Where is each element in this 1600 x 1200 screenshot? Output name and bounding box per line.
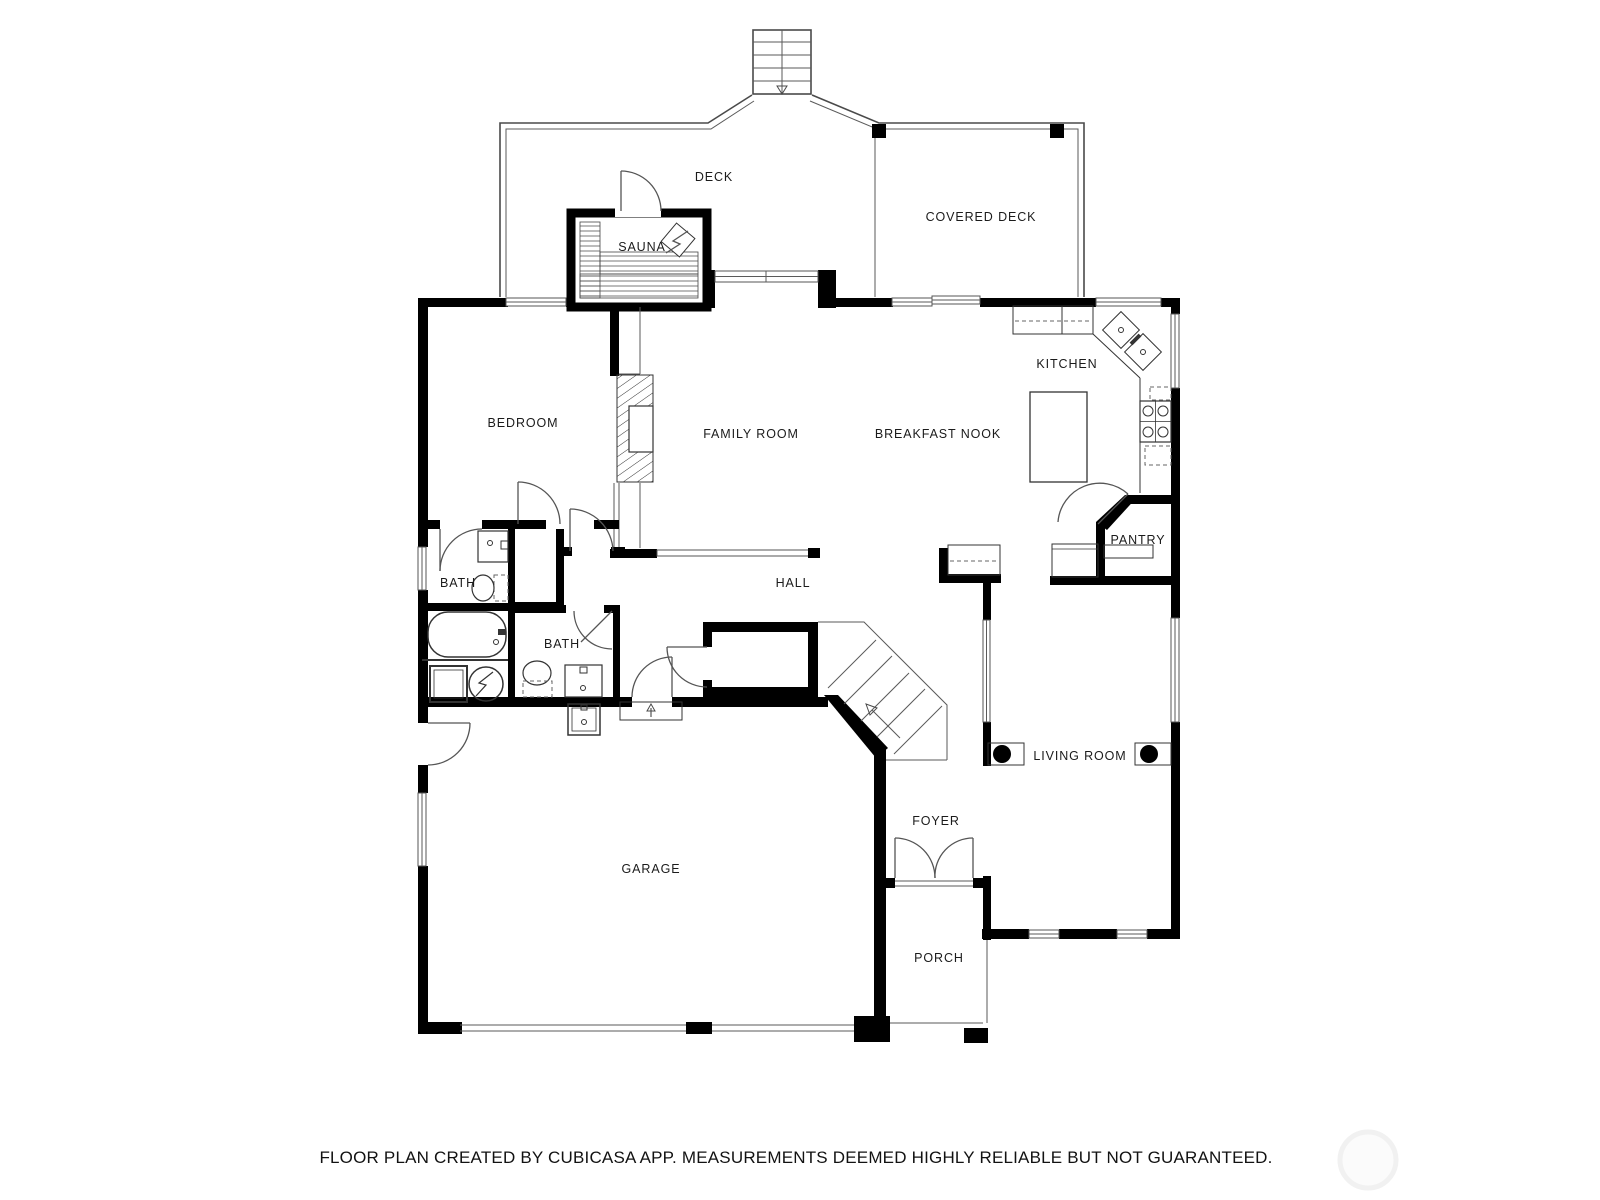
shower <box>430 666 467 702</box>
room-label-bath-lower: BATH <box>544 637 580 651</box>
bath-window <box>418 547 426 590</box>
fireplace-insert <box>629 406 653 452</box>
room-label-foyer: FOYER <box>912 814 960 828</box>
room-labels: DECK COVERED DECK SAUNA KITCHEN BREAKFAS… <box>440 170 1165 965</box>
bath-lower-sink <box>565 665 602 697</box>
bath-upper-toilet-tank <box>494 575 508 601</box>
living-bottom-window-2 <box>1117 930 1147 938</box>
stair-opening-rail <box>983 620 990 722</box>
floor-plan-drawing: DECK COVERED DECK SAUNA KITCHEN BREAKFAS… <box>0 0 1600 1200</box>
floor-plan-page: DECK COVERED DECK SAUNA KITCHEN BREAKFAS… <box>0 0 1600 1200</box>
tub-faucet <box>498 629 506 635</box>
room-label-breakfast-nook: BREAKFAST NOOK <box>875 427 1001 441</box>
deck-stairs <box>753 30 811 94</box>
column-left-dot <box>993 745 1011 763</box>
bathtub <box>428 612 506 657</box>
patio-slider <box>700 270 836 308</box>
sauna-room <box>571 171 707 307</box>
room-label-pantry: PANTRY <box>1111 533 1166 547</box>
column-right-dot <box>1140 745 1158 763</box>
interior-stairs <box>818 622 947 760</box>
room-label-covered-deck: COVERED DECK <box>926 210 1037 224</box>
room-label-deck: DECK <box>695 170 733 184</box>
garage-window <box>418 793 426 866</box>
deck-post <box>872 124 886 138</box>
room-label-porch: PORCH <box>914 951 964 965</box>
sauna-bench <box>600 252 698 274</box>
sauna-bench <box>580 274 698 298</box>
exterior-walls <box>418 298 1180 1043</box>
room-label-hall: HALL <box>776 576 811 590</box>
room-label-bedroom: BEDROOM <box>488 416 559 430</box>
living-right-window <box>1171 618 1179 722</box>
bedroom-door <box>518 482 560 524</box>
front-double-door <box>895 838 973 878</box>
room-label-bath-upper: BATH <box>440 576 476 590</box>
bath-upper-door <box>440 529 482 571</box>
garage-entry-door <box>632 657 672 697</box>
garage-side-door <box>428 723 470 765</box>
room-label-kitchen: KITCHEN <box>1036 357 1097 371</box>
nook-window <box>892 298 932 306</box>
kitchen-island <box>1030 392 1087 482</box>
water-heater <box>469 667 503 701</box>
kitchen-window <box>1096 298 1161 306</box>
bath-upper-sink <box>478 531 508 562</box>
closet-door <box>667 647 707 687</box>
room-label-family-room: FAMILY ROOM <box>703 427 799 441</box>
kitchen-right-window <box>1171 314 1179 388</box>
footer-disclaimer: FLOOR PLAN CREATED BY CUBICASA APP. MEAS… <box>319 1148 1272 1167</box>
nook-window-2 <box>932 296 980 304</box>
room-label-garage: GARAGE <box>622 862 681 876</box>
room-label-sauna: SAUNA <box>618 240 666 254</box>
living-bottom-window <box>1029 930 1059 938</box>
bath-lower-toilet-tank <box>523 681 552 697</box>
deck-post <box>1050 124 1064 138</box>
kitchen-counter <box>1013 306 1093 334</box>
hall-bedroom-door <box>570 509 613 551</box>
nook-cabinet <box>948 545 1000 575</box>
bedroom-window <box>506 298 566 306</box>
cubicasa-watermark-circle <box>1340 1132 1396 1188</box>
room-label-living-room: LIVING ROOM <box>1033 749 1126 763</box>
doors <box>428 482 1128 878</box>
sauna-door-opening <box>615 204 661 217</box>
